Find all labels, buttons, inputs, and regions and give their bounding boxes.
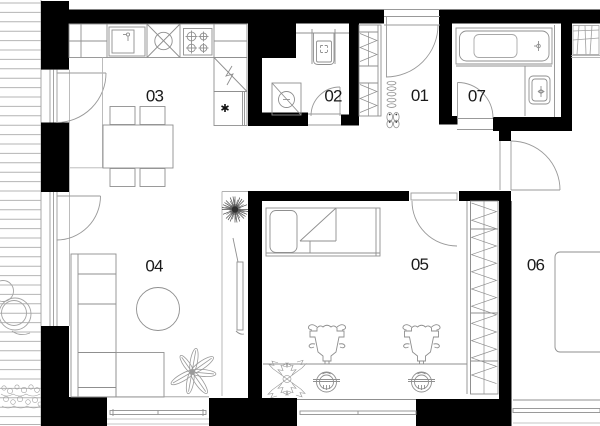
svg-text:02: 02 (324, 87, 342, 106)
svg-text:07: 07 (468, 87, 486, 106)
svg-text:03: 03 (146, 87, 164, 106)
svg-text:01: 01 (411, 86, 429, 105)
svg-text:04: 04 (145, 257, 163, 276)
svg-text:06: 06 (527, 256, 545, 275)
svg-text:05: 05 (411, 255, 429, 274)
